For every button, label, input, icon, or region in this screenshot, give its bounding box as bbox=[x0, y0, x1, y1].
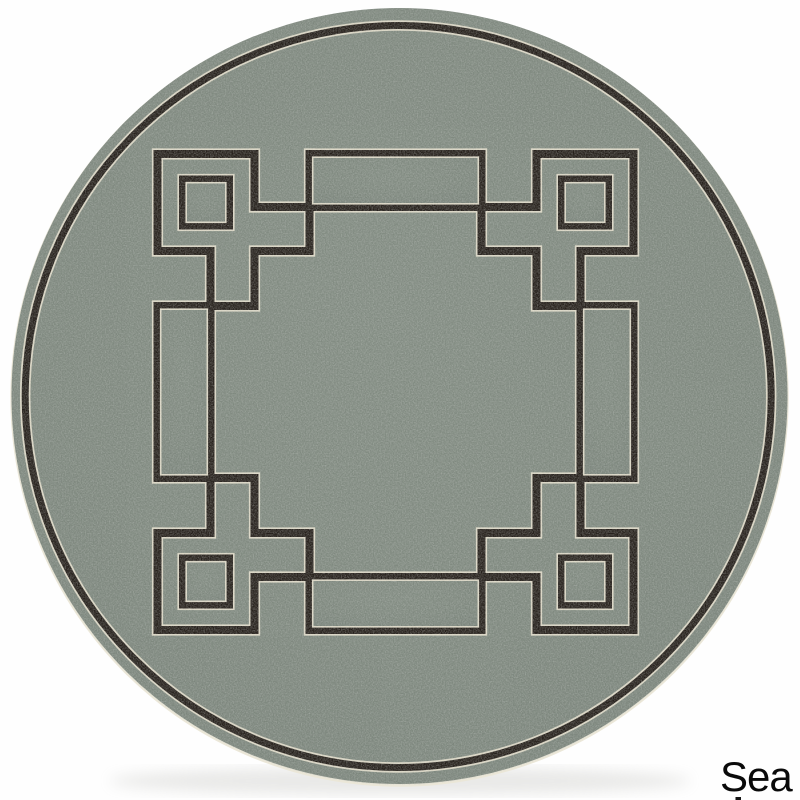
svg-text:Sea: Sea bbox=[720, 753, 793, 800]
